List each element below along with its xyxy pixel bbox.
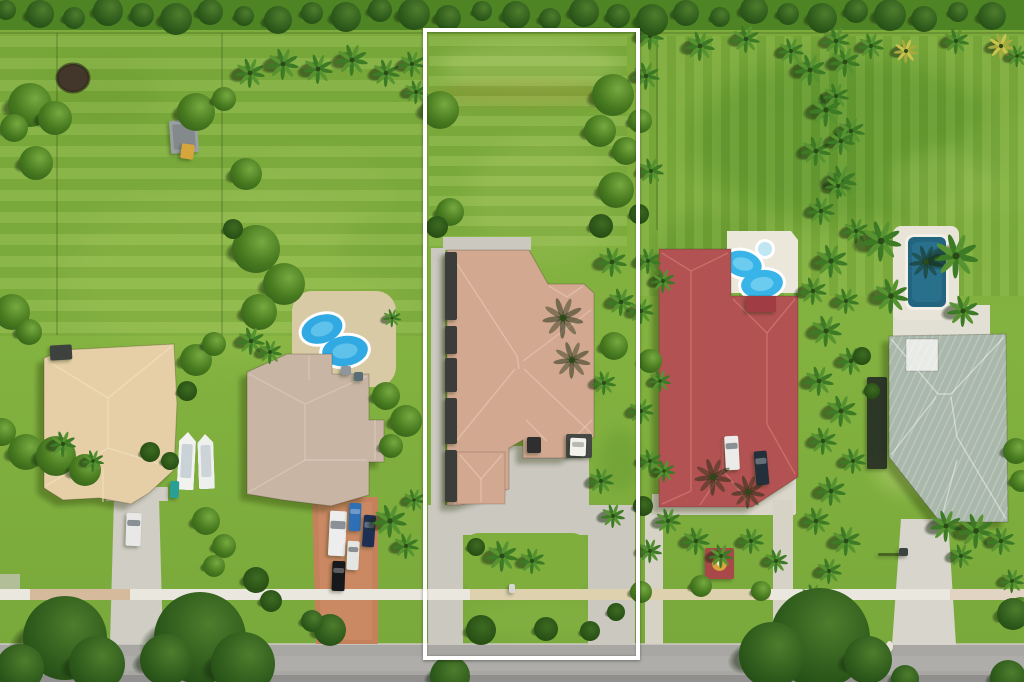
fountain (705, 548, 734, 579)
property-boundary-outline (423, 28, 640, 660)
car-white2-lot2 (346, 541, 360, 571)
car-black-lot2-detail (333, 568, 344, 573)
basketball-hoop (899, 548, 908, 556)
aerial-photo (0, 0, 1024, 682)
car-white-lot4 (724, 436, 740, 471)
car-dark-lot4-detail (755, 458, 766, 465)
car-navy-lot2 (362, 515, 376, 548)
boat-2-detail (200, 445, 211, 477)
garage-dark-lot1 (50, 344, 73, 360)
pedestrian (886, 641, 893, 652)
car-blue-lot2 (349, 503, 362, 531)
jetski (170, 481, 180, 498)
red-paver-patio-lot4 (746, 296, 776, 312)
boat-1-detail (180, 444, 193, 479)
boat-2 (197, 434, 215, 490)
car-white2-lot2-detail (348, 547, 358, 553)
yellow-loader (180, 143, 195, 160)
car-blue-lot2-detail (350, 509, 360, 514)
house-1-cream (44, 344, 177, 504)
shade-structure-lot5 (867, 377, 887, 469)
fountain-detail (717, 561, 722, 566)
car-black-lot2 (331, 561, 345, 591)
rv-white-lot2-detail (330, 521, 345, 530)
car-navy-lot2-detail (364, 522, 374, 529)
car-white-lot4-detail (725, 443, 737, 450)
rv-white-lot2 (328, 511, 347, 557)
pool-equipment-b (354, 372, 363, 381)
house-2-gray-tan (247, 354, 384, 506)
car-white-lot1-detail (127, 520, 140, 526)
car-white-lot1 (125, 513, 141, 547)
pool-equipment-a (341, 366, 351, 375)
